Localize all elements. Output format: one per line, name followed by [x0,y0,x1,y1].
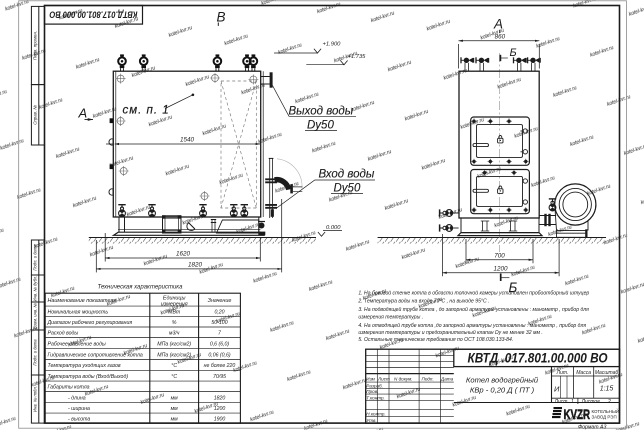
svg-text:1620: 1620 [176,251,191,258]
svg-text:Dy50: Dy50 [307,120,334,132]
svg-text:Дата: Дата [440,377,454,382]
svg-text:мм: мм [171,406,179,412]
svg-text:А: А [78,106,88,121]
svg-text:И: И [554,385,560,394]
svg-text:Разраб.: Разраб. [366,383,383,388]
svg-text:Лист: Лист [554,399,568,405]
svg-text:- длина: - длина [68,395,86,401]
svg-text:1200: 1200 [214,406,226,412]
svg-text:Взам. инв. №: Взам. инв. № [33,303,38,329]
svg-text:0,06 (0,6): 0,06 (0,6) [208,352,230,358]
svg-text:Котел водогрейный: Котел водогрейный [466,375,539,384]
svg-text:70/95: 70/95 [213,374,226,380]
svg-text:МВт: МВт [168,309,181,315]
svg-text:Инв. № подл.: Инв. № подл. [33,386,38,412]
svg-text:КОТЕЛЬНЫЙ: КОТЕЛЬНЫЙ [592,409,620,414]
svg-text:Подп.: Подп. [422,377,434,382]
svg-text:Значение: Значение [208,298,232,304]
svg-text:Габариты котла: Габариты котла [48,385,90,391]
svg-text:Масса: Масса [576,370,591,376]
svg-text:Выход воды: Выход воды [289,106,354,118]
svg-text:Справ. №: Справ. № [33,105,38,125]
svg-text:N докум.: N докум. [394,377,413,382]
svg-text:50-100: 50-100 [211,320,227,326]
svg-text:860: 860 [495,34,506,41]
svg-text:°С: °С [171,374,177,380]
svg-text:Температура воды (Вход/Выход): Температура воды (Вход/Выход) [48,374,129,380]
svg-text:А: А [493,17,503,32]
svg-text:- ширина: - ширина [68,406,90,412]
svg-text:Пров.: Пров. [366,389,378,394]
svg-text:КВТД.017.801.00.000 ВО: КВТД.017.801.00.000 ВО [49,9,137,20]
svg-text:Подп. и дата: Подп. и дата [33,339,38,366]
svg-text:0,20: 0,20 [214,309,224,315]
svg-text:1:15: 1:15 [600,386,614,393]
svg-text:1200: 1200 [493,266,508,273]
svg-text:- высота: - высота [68,417,90,423]
svg-text:700: 700 [494,253,505,260]
svg-text:Гидравлическое сопротивление к: Гидравлическое сопротивление котла [48,352,143,358]
svg-text:Н.контр.: Н.контр. [366,412,385,417]
svg-text:Наименование показателя: Наименование показателя [48,298,117,304]
svg-text:2: 2 [607,399,611,405]
svg-text:Лит.: Лит. [556,370,569,376]
svg-text:КВр - 0,20 Д ( ПТ ): КВр - 0,20 Д ( ПТ ) [470,386,535,395]
svg-text:Лист: Лист [377,377,390,382]
svg-text:1540: 1540 [180,137,195,144]
svg-text:Инв. № дубл.: Инв. № дубл. [33,276,38,302]
svg-text:МПа (кгс/см2): МПа (кгс/см2) [157,342,191,348]
svg-text:1900: 1900 [214,417,226,423]
svg-text:Техническая характеристика: Техническая характеристика [98,285,184,291]
svg-text:Расход воды: Расход воды [48,330,79,336]
svg-text:Изм: Изм [366,377,375,382]
svg-text:не более 220: не более 220 [204,363,236,369]
svg-text:2. Температура воды на входе: 2. Температура воды на входе 70°С , на в… [357,299,489,305]
svg-text:мм: мм [171,417,179,423]
svg-text:KVZR: KVZR [564,407,591,422]
svg-text:3. На подводящей трубе котла: 3. На подводящей трубе котла , до запорн… [358,306,589,313]
svg-text:измерения: измерения [161,301,188,307]
svg-text:Формат А3: Формат А3 [578,424,606,430]
svg-text:Б: Б [510,47,517,59]
svg-text:Температура уходящих газов: Температура уходящих газов [48,363,121,369]
svg-text:Dy50: Dy50 [334,183,361,195]
svg-text:1. На боковой стенке котла в: 1. На боковой стенке котла в области топ… [358,290,589,297]
svg-text:мм: мм [171,395,179,401]
svg-text:+1.735: +1.735 [348,54,367,60]
svg-text:0,6 (6,0): 0,6 (6,0) [210,342,230,348]
svg-text:%: % [172,320,177,326]
svg-text:Перв. примен.: Перв. примен. [33,31,38,60]
svg-text:Масштаб: Масштаб [595,370,619,376]
svg-text:МПа (кгс/см2): МПа (кгс/см2) [157,352,191,358]
svg-text:В: В [217,10,226,25]
svg-text:5. Остальные технические треб: 5. Остальные технические требования по О… [358,337,513,343]
svg-text:°С: °С [171,363,177,369]
svg-text:+1.900: +1.900 [323,42,342,48]
svg-text:Диапазон рабочего регулировани: Диапазон рабочего регулирования [47,320,133,326]
svg-text:Подп. и дата: Подп. и дата [33,244,38,271]
svg-text:1: 1 [571,399,574,405]
svg-text:Рабочее давление воды: Рабочее давление воды [48,342,106,348]
svg-text:1820: 1820 [214,395,226,401]
svg-text:измерения температуры и предох: измерения температуры и предохранительны… [358,329,542,336]
svg-text:ЗАВОД РЭП: ЗАВОД РЭП [592,415,617,420]
svg-text:см. п. 1: см. п. 1 [123,105,170,117]
svg-text:м3/ч: м3/ч [169,330,180,336]
svg-text:КВТД .017.801.00.000 ВО: КВТД .017.801.00.000 ВО [468,351,608,366]
svg-text:Листов: Листов [581,399,601,405]
svg-text:Вход воды: Вход воды [319,169,375,181]
svg-text:Утв.: Утв. [366,418,376,423]
svg-text:Номинальная мощность: Номинальная мощность [48,309,109,315]
svg-text:Т.контр.: Т.контр. [366,395,385,400]
svg-text:1820: 1820 [188,262,203,269]
svg-text:4. На отводящей трубе котла ,: 4. На отводящей трубе котла ,до запорной… [358,322,586,329]
svg-text:измерения температуры .: измерения температуры . [358,314,423,320]
